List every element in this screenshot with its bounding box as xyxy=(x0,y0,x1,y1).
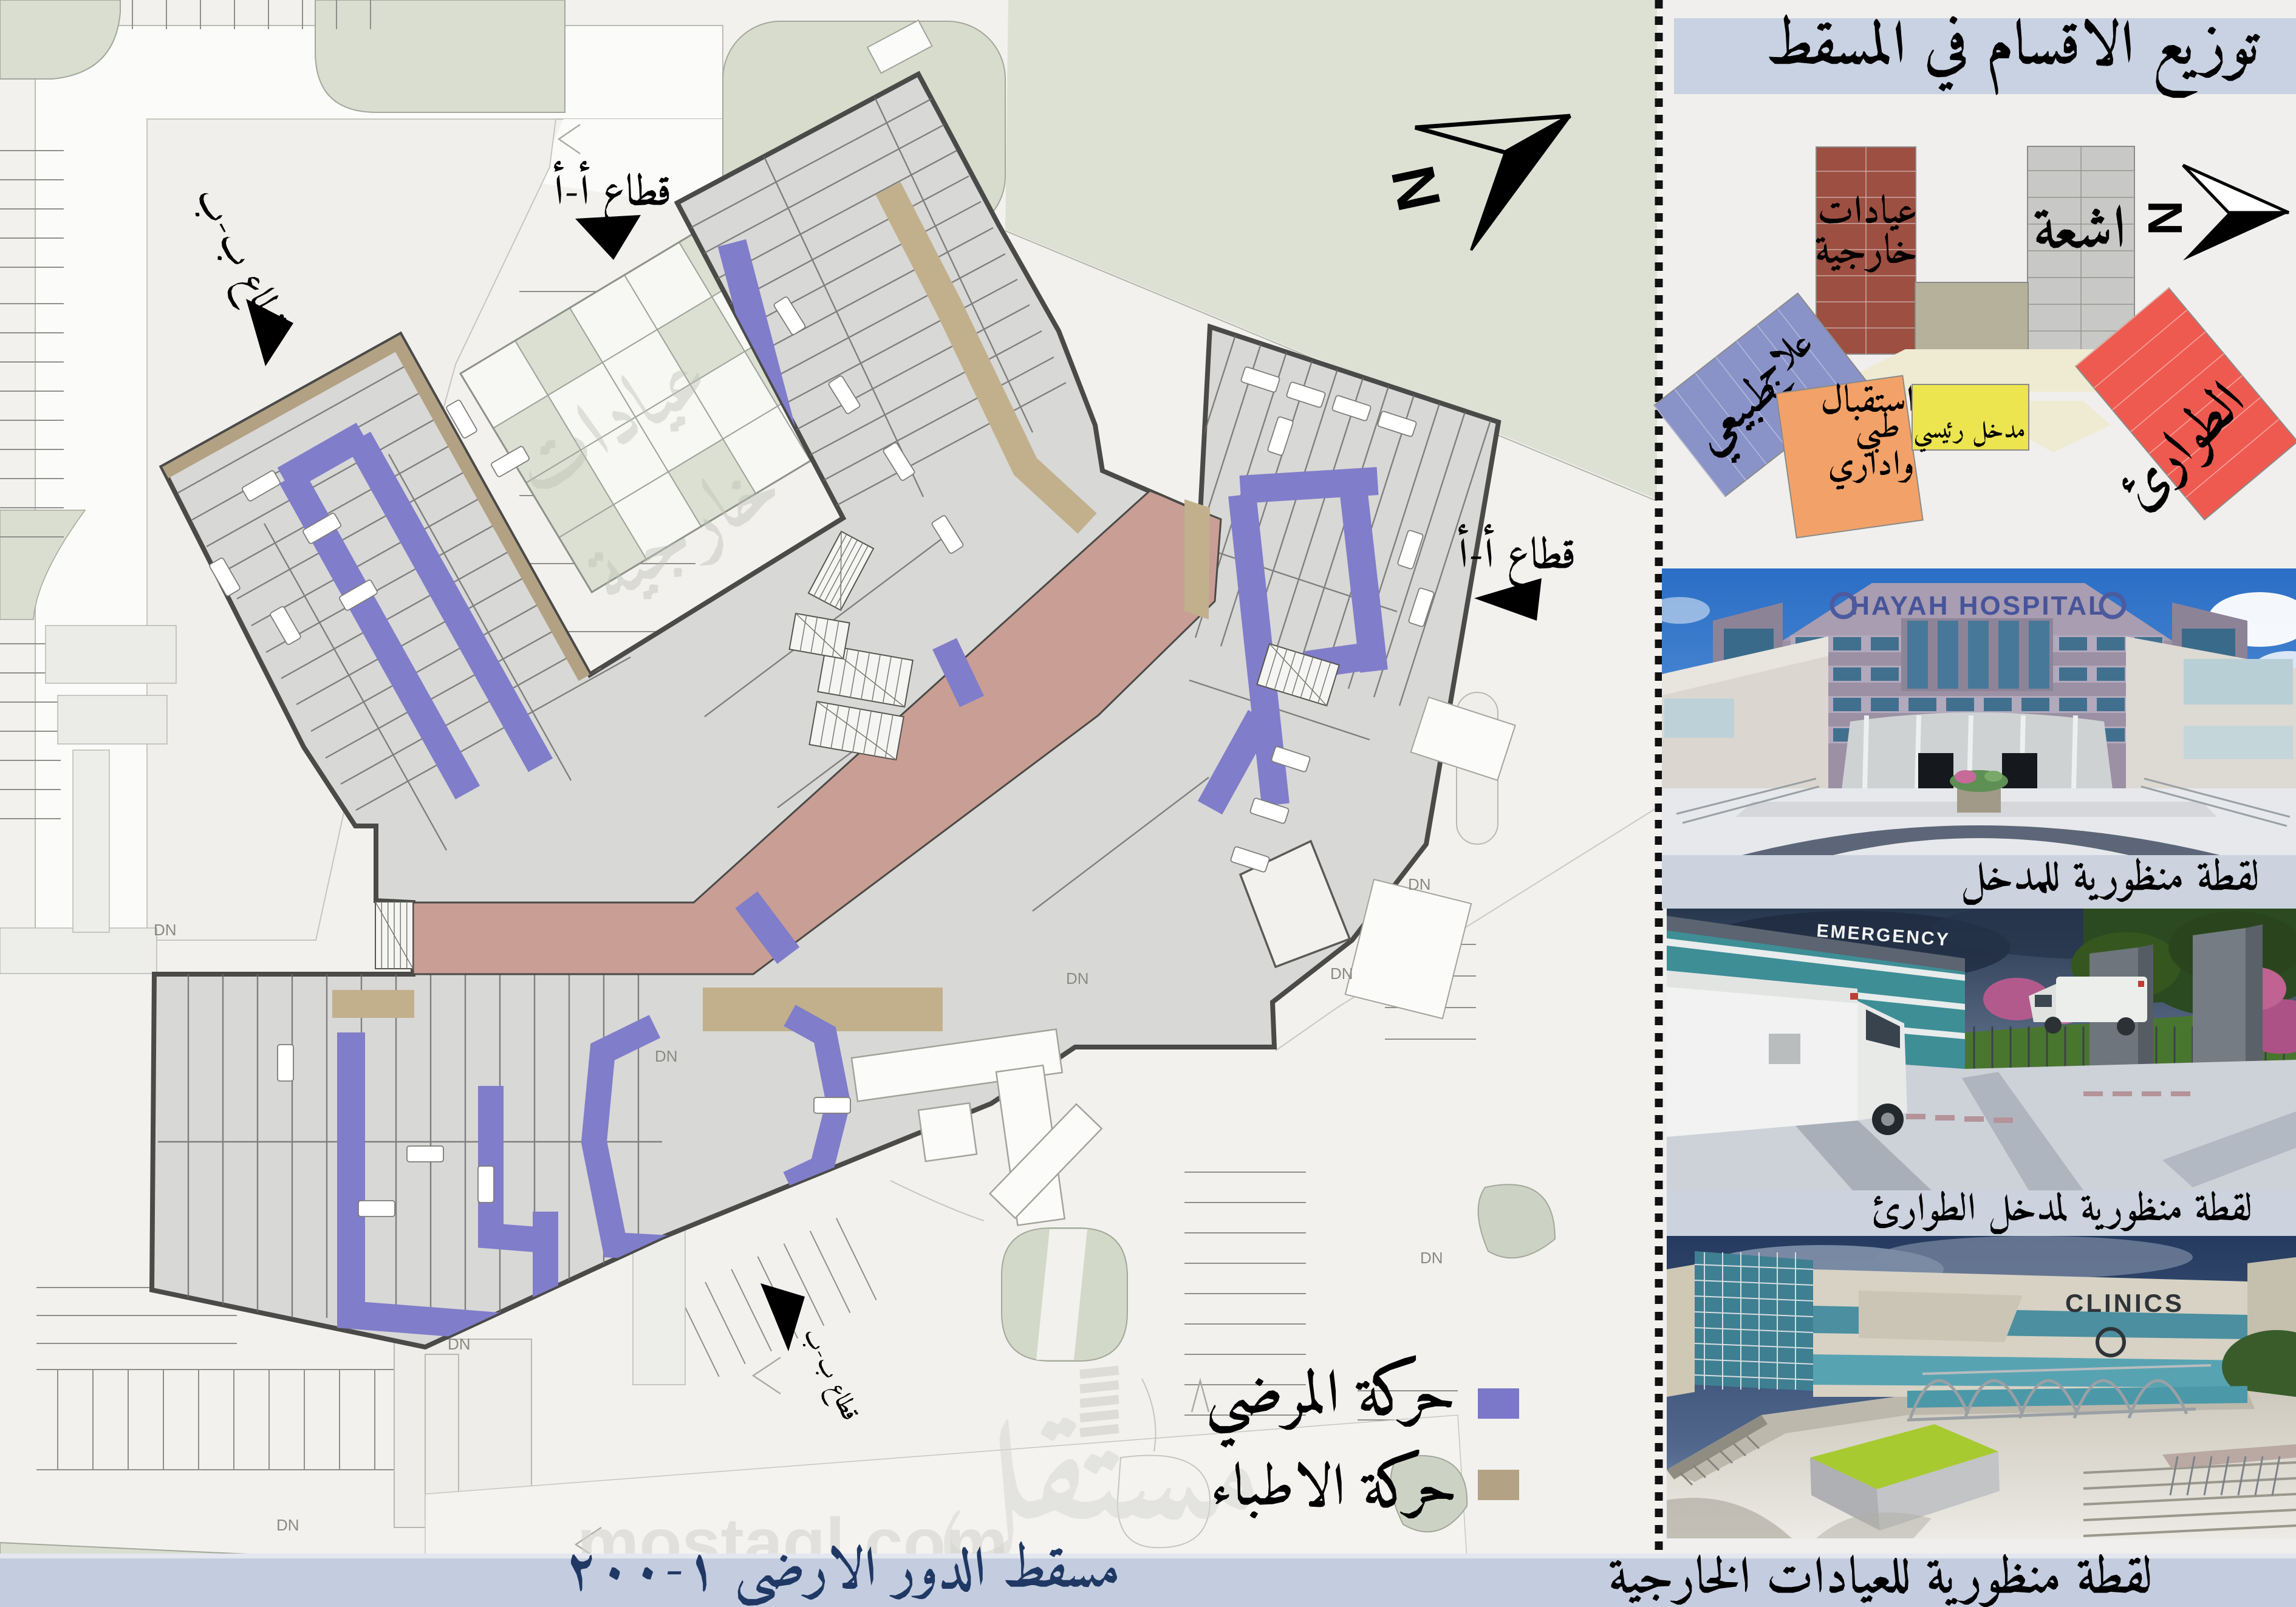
svg-text:DN: DN xyxy=(1420,1249,1443,1267)
svg-text:DN: DN xyxy=(1330,964,1353,983)
svg-text:DN: DN xyxy=(448,1335,471,1353)
svg-text:N: N xyxy=(2138,200,2192,236)
svg-text:HAYAH HOSPITAL: HAYAH HOSPITAL xyxy=(1850,591,2106,621)
svg-text:CLINICS: CLINICS xyxy=(2065,1289,2184,1317)
svg-text:DN: DN xyxy=(154,921,177,939)
svg-text:DN: DN xyxy=(655,1047,678,1065)
svg-text:DN: DN xyxy=(1066,969,1089,988)
svg-text:DN: DN xyxy=(1408,875,1431,893)
svg-text:DN: DN xyxy=(276,1516,299,1534)
